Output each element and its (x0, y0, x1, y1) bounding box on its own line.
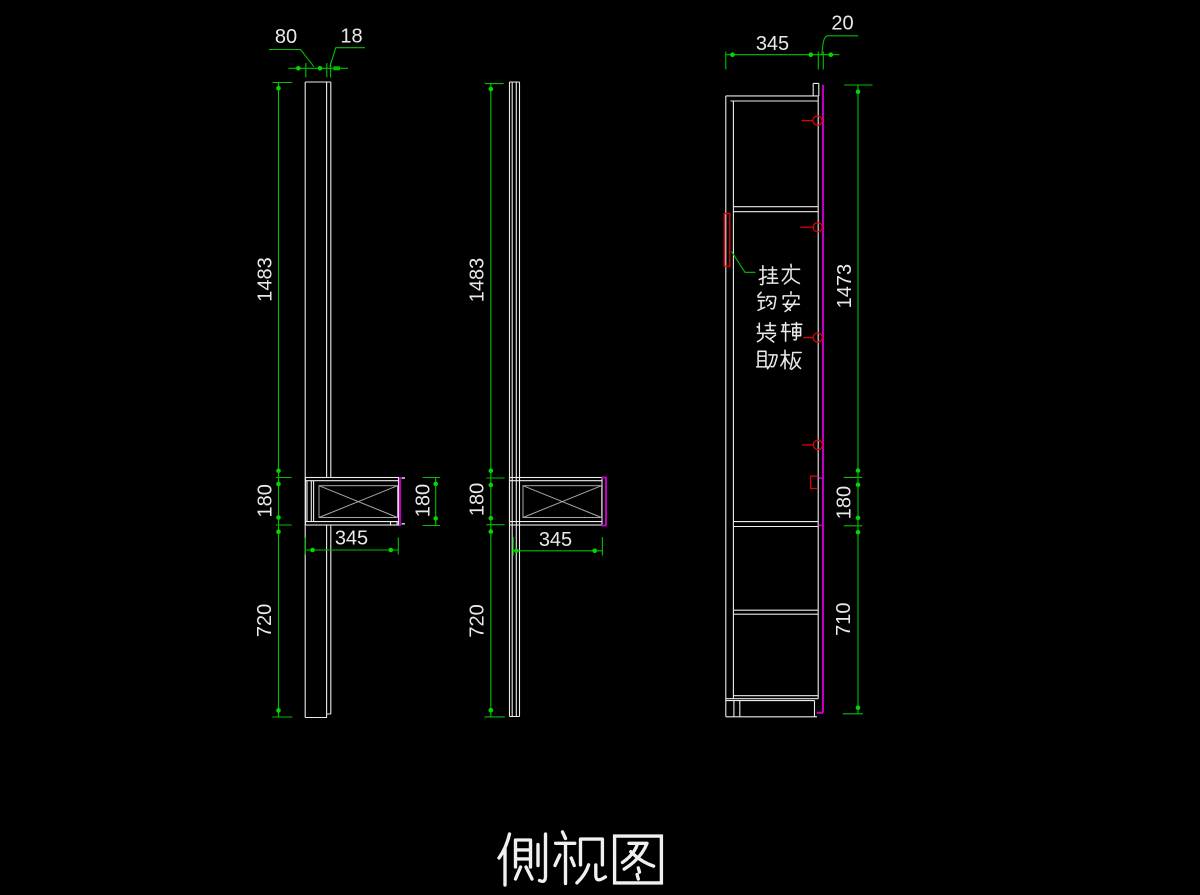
svg-text:180: 180 (413, 484, 435, 517)
svg-text:80: 80 (275, 26, 297, 48)
svg-text:345: 345 (539, 529, 572, 551)
svg-text:710: 710 (833, 603, 855, 636)
svg-text:1473: 1473 (834, 264, 856, 309)
svg-text:180: 180 (834, 486, 856, 519)
svg-text:1483: 1483 (255, 257, 277, 302)
svg-text:720: 720 (466, 604, 488, 637)
svg-text:20: 20 (831, 13, 853, 35)
svg-text:18: 18 (340, 26, 362, 48)
svg-text:1483: 1483 (467, 258, 489, 303)
svg-text:720: 720 (254, 604, 276, 637)
svg-text:180: 180 (466, 483, 488, 516)
svg-text:345: 345 (335, 528, 368, 550)
svg-text:345: 345 (756, 33, 789, 55)
svg-text:180: 180 (255, 484, 277, 517)
